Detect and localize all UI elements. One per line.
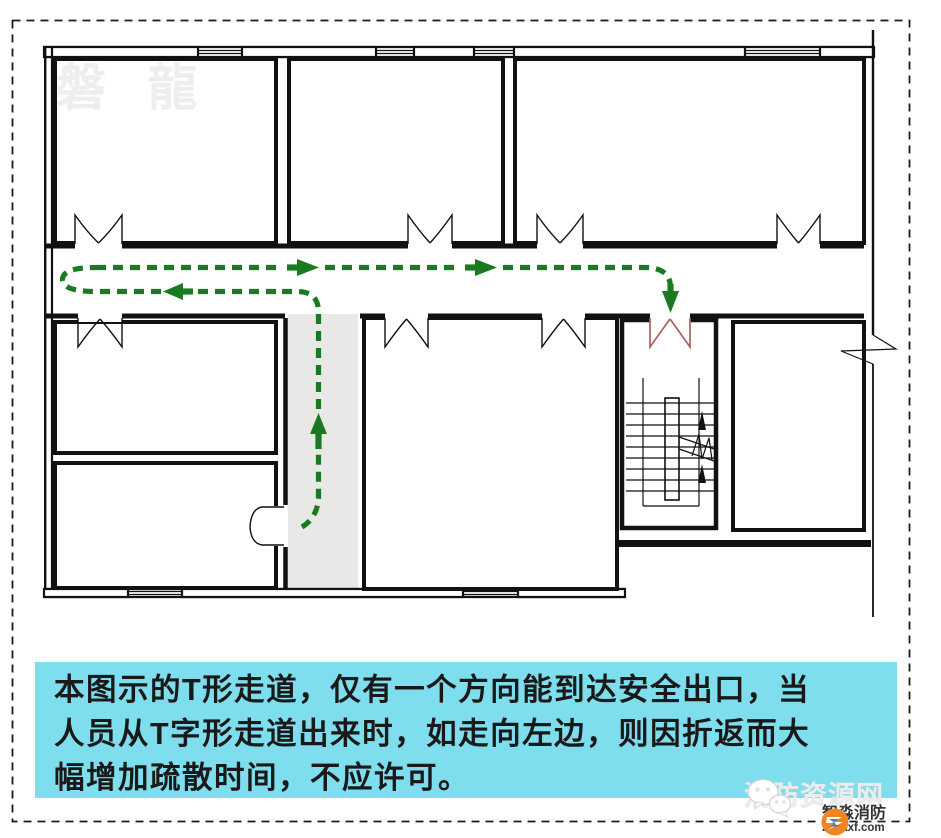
route-arrow-right-2 bbox=[475, 259, 497, 276]
room-top-right bbox=[515, 59, 864, 243]
watermark-brand: 智淼消防 zmjaxf.com bbox=[820, 805, 886, 835]
evacuation-route bbox=[63, 259, 680, 527]
room-top-middle bbox=[289, 59, 503, 243]
stair-handrail bbox=[665, 398, 679, 500]
corridor-walls bbox=[44, 246, 864, 589]
door-symbols bbox=[75, 215, 820, 545]
room-bottom-left bbox=[55, 463, 276, 588]
caption-line-2: 人员从T字形走道出来时，如走向左边，则因折返而大 bbox=[54, 712, 897, 756]
brand-logo-icon bbox=[820, 805, 850, 837]
route-arrow-left bbox=[163, 283, 183, 300]
room-top-left bbox=[55, 59, 276, 243]
room-central bbox=[364, 318, 617, 589]
door-central-room-1 bbox=[385, 318, 428, 347]
caption-line-1: 本图示的T形走道，仅有一个方向能到达安全出口，当 bbox=[54, 668, 897, 712]
door-openings bbox=[75, 238, 820, 546]
room-walls bbox=[55, 59, 864, 589]
door-central-room-2 bbox=[542, 318, 585, 347]
room-mid-left bbox=[55, 322, 276, 453]
wechat-icon bbox=[744, 774, 792, 820]
route-u-turn bbox=[63, 268, 162, 292]
screenshot-root: 磐 龍 bbox=[0, 0, 941, 838]
stem-corridor-shading bbox=[288, 314, 358, 591]
room-right-of-stairs bbox=[733, 322, 864, 530]
exit-door-red bbox=[650, 318, 690, 347]
wall-break-symbol bbox=[841, 335, 896, 364]
staircase bbox=[626, 378, 717, 506]
route-arrow-right-1 bbox=[297, 259, 319, 276]
